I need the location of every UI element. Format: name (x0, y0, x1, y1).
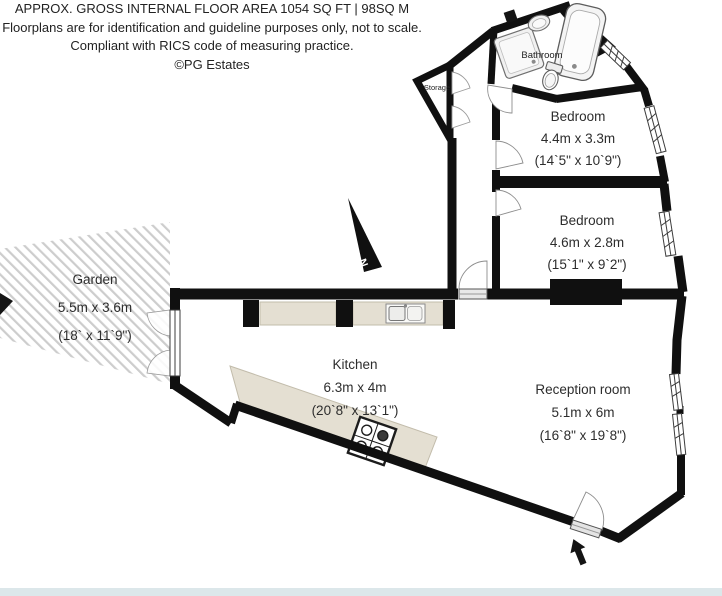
window-bathroom (601, 40, 631, 69)
room-dim-metric: 4.6m x 2.8m (485, 232, 689, 254)
door-hall-kitchen (459, 261, 487, 299)
room-name: Bedroom (485, 210, 689, 232)
room-name: Bedroom (476, 106, 680, 128)
room-dim-imperial: (14`5" x 10`9") (476, 150, 680, 172)
bathroom-label: Bathroom (500, 50, 584, 61)
chimney-breast (550, 279, 622, 305)
room-name: Garden (2, 266, 188, 294)
room-dim-imperial: (16`8" x 19`8") (481, 424, 685, 447)
disclaimer-line-4: ©PG Estates (0, 56, 424, 75)
bedroom-middle-label: Bedroom 4.6m x 2.8m (15`1" x 9`2") (485, 210, 689, 276)
storage-room (417, 65, 470, 139)
footer-bar (0, 588, 722, 596)
room-dim-metric: 6.3m x 4m (250, 376, 460, 399)
garden-label: Garden 5.5m x 3.6m (18` x 11`9") (2, 266, 188, 350)
storage-door-swing (452, 106, 470, 128)
bedroom-top-label: Bedroom 4.4m x 3.3m (14`5" x 10`9") (476, 106, 680, 172)
room-dim-metric: 5.5m x 3.6m (2, 294, 188, 322)
room-dim-imperial: (18` x 11`9") (2, 322, 188, 350)
room-name: Kitchen (250, 353, 460, 376)
disclaimer-line-1: APPROX. GROSS INTERNAL FLOOR AREA 1054 S… (0, 0, 424, 19)
room-dim-imperial: (20`8" x 13`1") (250, 399, 460, 422)
kitchen-label: Kitchen 6.3m x 4m (20`8" x 13`1") (250, 353, 460, 422)
room-dim-metric: 4.4m x 3.3m (476, 128, 680, 150)
reception-label: Reception room 5.1m x 6m (16`8" x 19`8") (481, 378, 685, 447)
kitchen-sink-icon (386, 304, 425, 323)
storage-label: Storage (409, 83, 465, 92)
disclaimer-line-3: Compliant with RICS code of measuring pr… (0, 37, 424, 56)
counter-top-left (260, 302, 336, 325)
room-name: Reception room (481, 378, 685, 401)
floorplan-page: APPROX. GROSS INTERNAL FLOOR AREA 1054 S… (0, 0, 722, 596)
room-dim-metric: 5.1m x 6m (481, 401, 685, 424)
room-dim-imperial: (15`1" x 9`2") (485, 254, 689, 276)
door-entrance (570, 492, 603, 538)
disclaimer-text: APPROX. GROSS INTERNAL FLOOR AREA 1054 S… (0, 0, 424, 74)
entrance-arrow-icon (566, 536, 591, 567)
disclaimer-line-2: Floorplans are for identification and gu… (0, 19, 424, 38)
